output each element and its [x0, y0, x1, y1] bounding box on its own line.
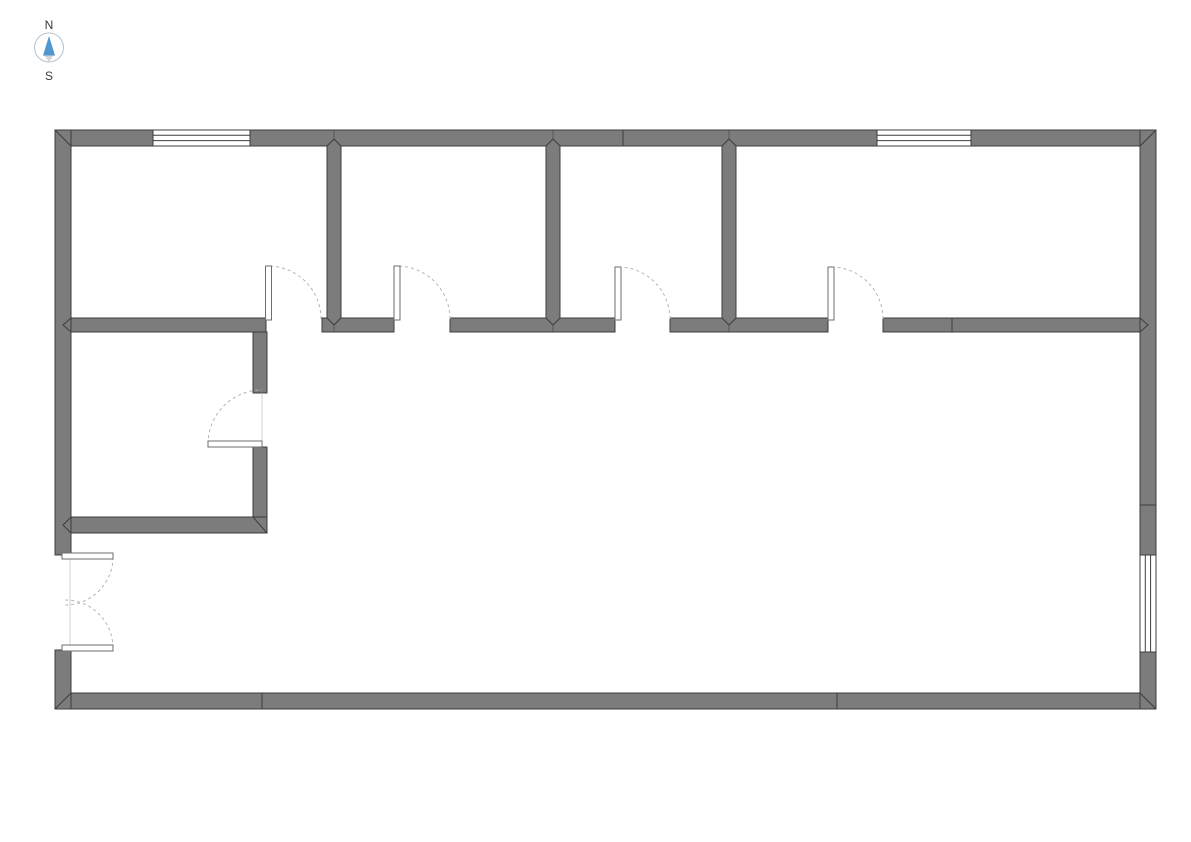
compass-north-arrow-icon — [43, 36, 55, 56]
wall-small-room-east-lower — [253, 447, 267, 517]
wall-partition-room3-room4 — [722, 139, 736, 325]
floor-plan: N S — [0, 0, 1191, 842]
compass-south-label: S — [45, 69, 53, 83]
wall-corridor-seg-5 — [883, 318, 1140, 332]
compass-south-arrow-icon — [45, 56, 54, 63]
windows — [153, 130, 1156, 652]
door-small-room — [208, 390, 262, 447]
compass: N S — [35, 18, 64, 83]
door-swing-arc — [831, 267, 883, 319]
wall-partition-room1-room2 — [327, 139, 341, 325]
door-swing-arc — [268, 266, 321, 319]
door-room3 — [615, 267, 670, 320]
window-frame — [153, 130, 250, 146]
wall-west-exterior-lower — [55, 650, 71, 709]
wall-partition-room2-room3 — [546, 139, 560, 325]
plan-canvas: N S — [0, 0, 1191, 842]
window-frame — [1140, 555, 1156, 652]
door-swing-arc — [208, 390, 262, 444]
wall-corridor-seg-1 — [71, 318, 266, 332]
door-leaf-top — [62, 553, 113, 559]
wall-corridor-seg-4 — [670, 318, 828, 332]
wall-joints — [55, 130, 1156, 709]
double-door-entry — [62, 553, 113, 651]
window-frame — [877, 130, 971, 146]
door-leaf — [208, 441, 262, 447]
door-swing-arc — [397, 266, 450, 319]
door-swing-arc-top — [65, 557, 113, 605]
door-swing-arc-bottom — [65, 600, 113, 648]
interior-walls — [71, 130, 1140, 533]
exterior-walls — [55, 130, 1156, 709]
wall-south-exterior — [55, 693, 1156, 709]
door-leaf — [394, 266, 400, 320]
wall-corridor-seg-3 — [450, 318, 615, 332]
window-north-left — [153, 130, 250, 146]
door-leaf — [266, 266, 272, 320]
wall-west-exterior-upper — [55, 130, 71, 555]
door-room1 — [266, 266, 322, 320]
door-room4 — [828, 267, 883, 320]
door-leaf-bottom — [62, 645, 113, 651]
door-leaf — [615, 267, 621, 320]
door-room2 — [394, 266, 450, 320]
door-leaf — [828, 267, 834, 320]
wall-small-room-east-upper — [253, 332, 267, 393]
door-swing-arc — [618, 267, 670, 319]
wall-small-room-south — [71, 517, 267, 533]
window-east — [1140, 555, 1156, 652]
window-north-right — [877, 130, 971, 146]
compass-north-label: N — [45, 18, 54, 32]
